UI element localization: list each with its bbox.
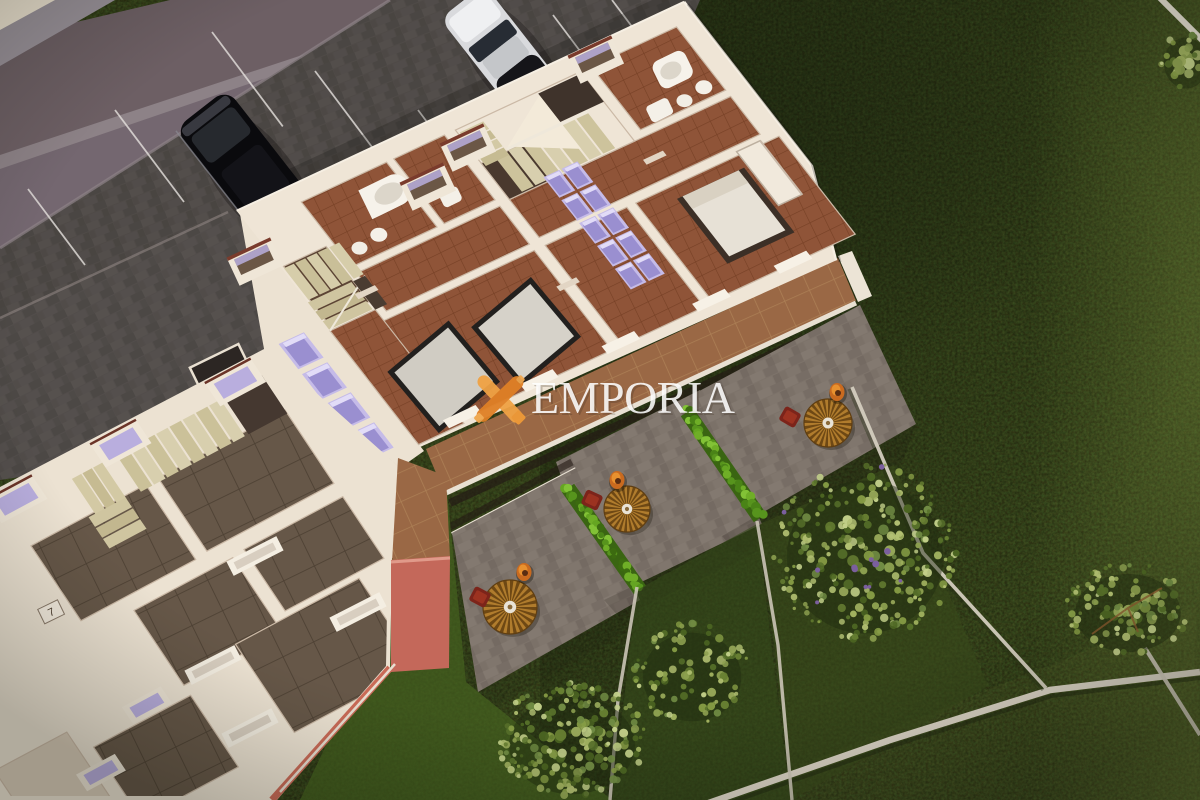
svg-text:EMPORIA: EMPORIA <box>531 372 735 423</box>
